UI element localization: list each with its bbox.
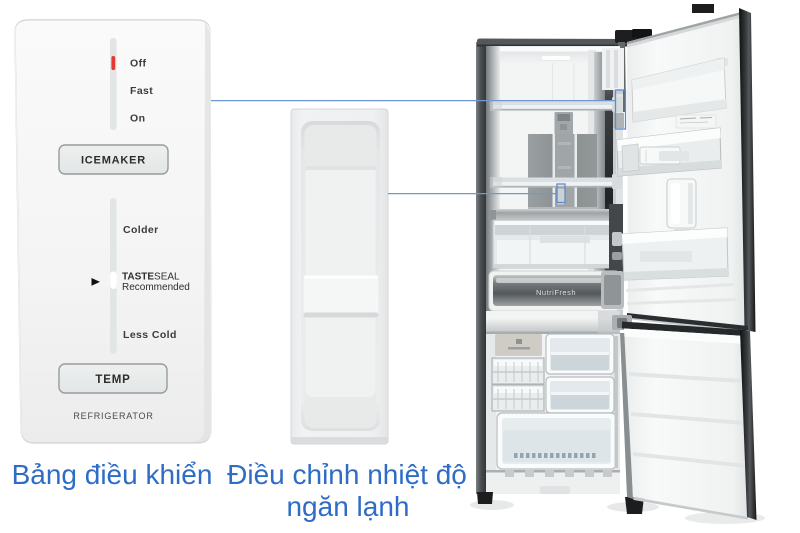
svg-text:ICEMAKER: ICEMAKER	[81, 155, 146, 167]
svg-text:Less Cold: Less Cold	[123, 329, 177, 341]
svg-text:Off: Off	[130, 58, 146, 70]
svg-text:ngăn lạnh: ngăn lạnh	[286, 491, 409, 522]
svg-text:NutriFresh: NutriFresh	[536, 288, 576, 297]
svg-text:Bảng điều khiển: Bảng điều khiển	[12, 459, 213, 490]
svg-text:Colder: Colder	[123, 224, 159, 236]
svg-text:Fast: Fast	[130, 85, 153, 97]
svg-text:On: On	[130, 113, 145, 125]
svg-text:TASTESEAL: TASTESEAL	[122, 272, 180, 283]
svg-text:REFRIGERATOR: REFRIGERATOR	[73, 411, 153, 421]
svg-text:Recommended: Recommended	[122, 282, 190, 293]
svg-text:TEMP: TEMP	[95, 374, 130, 386]
svg-text:Điều chỉnh nhiệt độ: Điều chỉnh nhiệt độ	[227, 459, 467, 490]
